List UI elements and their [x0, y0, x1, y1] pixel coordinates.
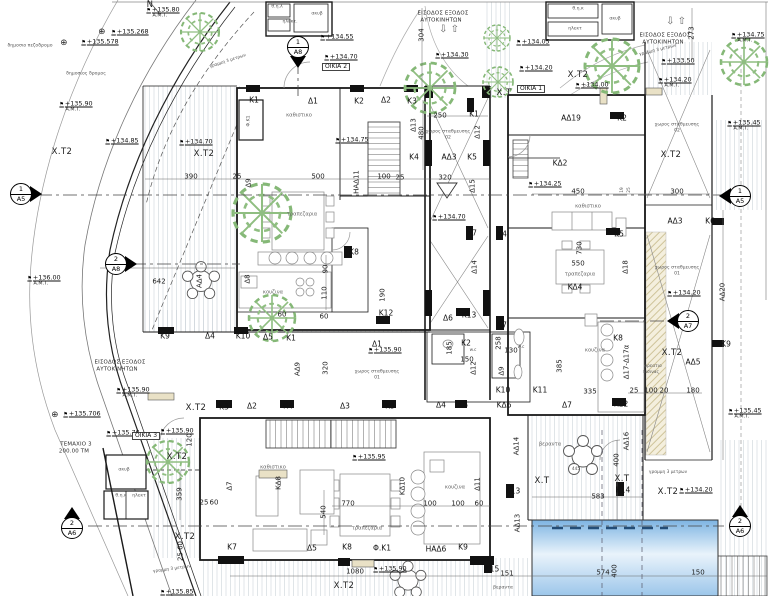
floor-plan-drawing — [0, 0, 769, 596]
floor-plan-canvas: δημοσιο πεζοδρομοδημοσιος δρομοςN+135.80… — [0, 0, 769, 596]
